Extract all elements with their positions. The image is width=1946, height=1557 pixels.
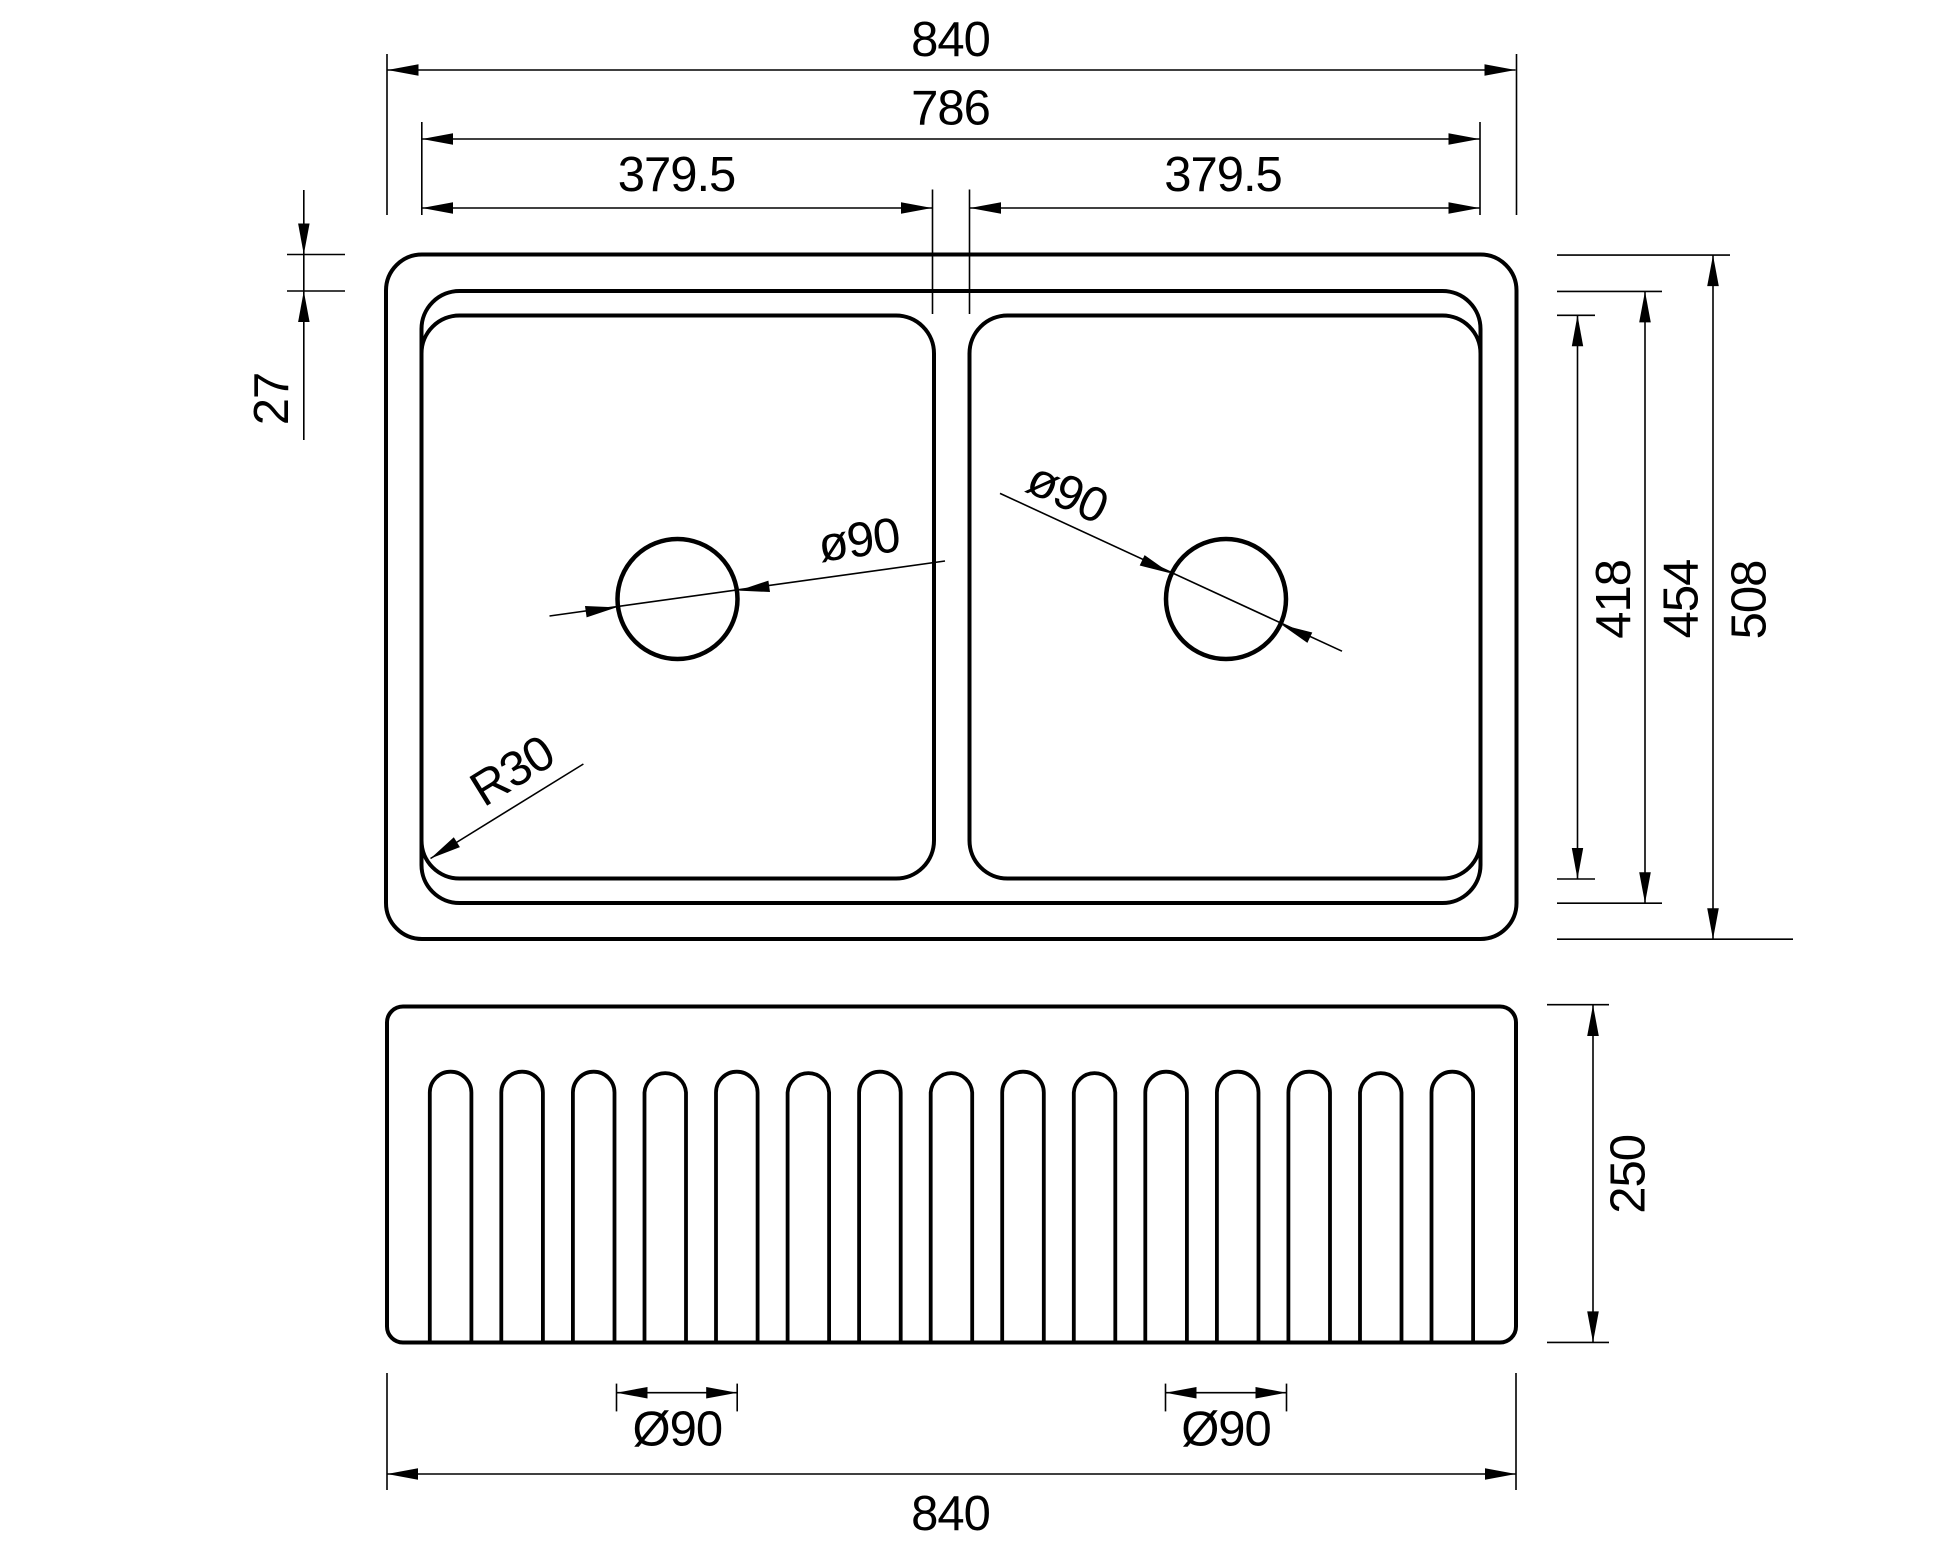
svg-text:840: 840	[911, 1487, 990, 1541]
svg-text:Ø90: Ø90	[632, 1402, 722, 1456]
svg-text:Ø90: Ø90	[1181, 1402, 1271, 1456]
svg-text:454: 454	[1655, 560, 1709, 639]
svg-text:250: 250	[1602, 1135, 1656, 1214]
svg-text:379.5: 379.5	[618, 148, 736, 202]
svg-text:ø90: ø90	[815, 508, 903, 573]
svg-text:508: 508	[1723, 561, 1777, 640]
svg-text:27: 27	[245, 373, 299, 426]
svg-text:418: 418	[1587, 560, 1641, 639]
svg-text:840: 840	[911, 13, 990, 67]
svg-text:379.5: 379.5	[1164, 148, 1282, 202]
svg-text:786: 786	[911, 82, 990, 136]
